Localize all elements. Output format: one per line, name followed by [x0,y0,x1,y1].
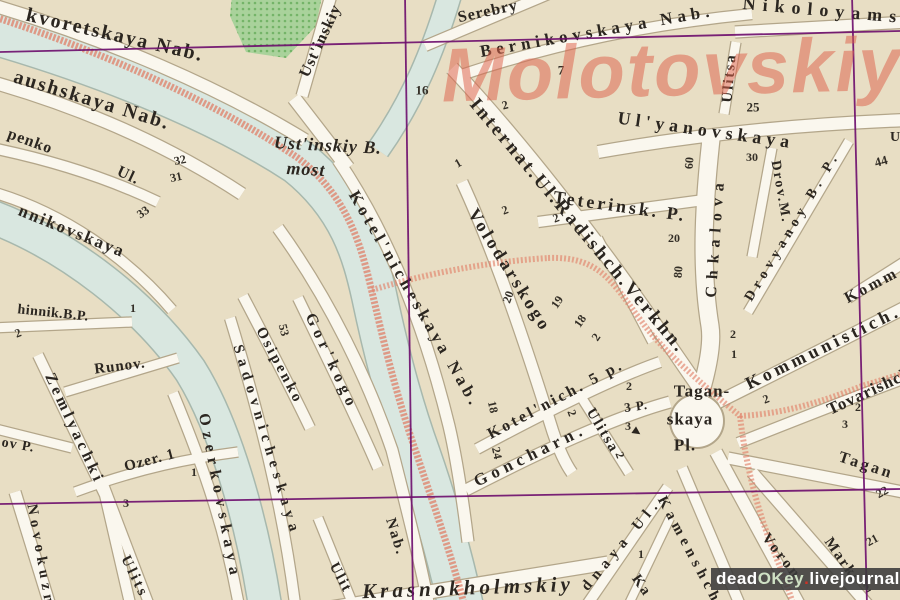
credit-part: OKey [758,569,804,589]
credit-watermark: deadOKey.livejournal.com [711,568,900,590]
historical-street-map: kvoretskaya Nab. aushskaya Nab. penko Ul… [0,0,900,600]
grid-line-vertical-left [405,0,413,600]
credit-part: livejournal [809,569,900,589]
district-watermark: Molotovskiy [440,20,900,119]
credit-part: dead [716,569,758,589]
grid-line-horizontal-bottom [0,489,900,504]
